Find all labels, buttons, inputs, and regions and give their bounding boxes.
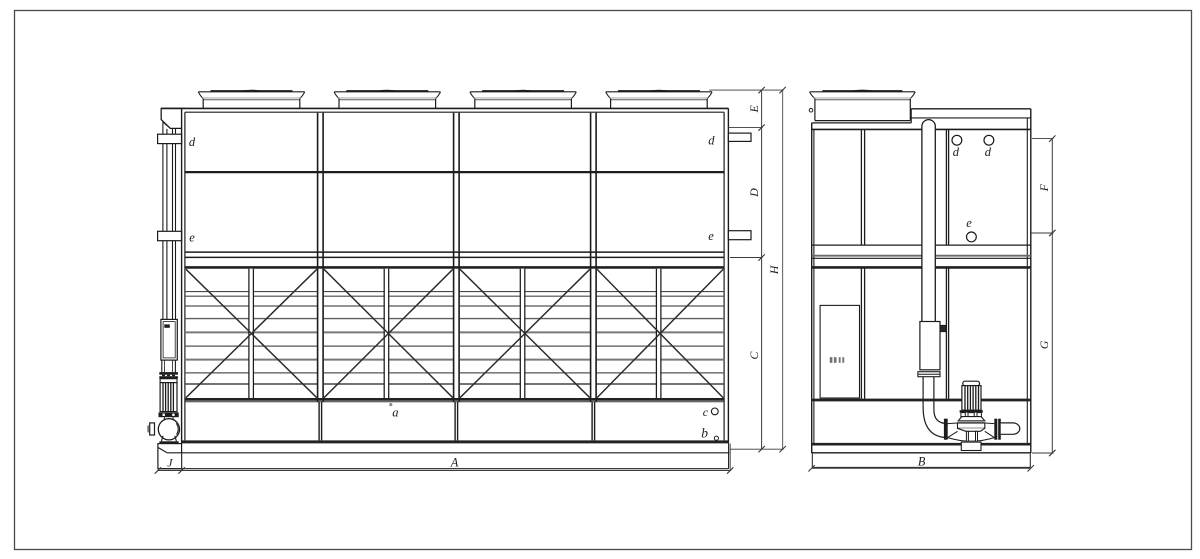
svg-text:d: d: [189, 135, 196, 149]
svg-text:d: d: [708, 133, 715, 147]
svg-text:e: e: [189, 230, 195, 244]
svg-text:d: d: [985, 145, 992, 159]
svg-text:F: F: [1037, 183, 1051, 192]
svg-text:D: D: [747, 188, 761, 198]
svg-text:B: B: [918, 455, 926, 469]
svg-text:a: a: [392, 405, 398, 419]
svg-text:d: d: [953, 145, 960, 159]
svg-text:c: c: [703, 405, 709, 419]
svg-text:G: G: [1037, 340, 1051, 349]
svg-text:b: b: [701, 425, 708, 440]
svg-text:e: e: [966, 216, 972, 230]
svg-text:e: e: [708, 229, 714, 243]
svg-text:A: A: [450, 455, 459, 469]
svg-text:C: C: [747, 351, 761, 359]
svg-text:H: H: [767, 264, 781, 275]
svg-text:J: J: [167, 455, 173, 469]
svg-text:E: E: [747, 104, 761, 113]
